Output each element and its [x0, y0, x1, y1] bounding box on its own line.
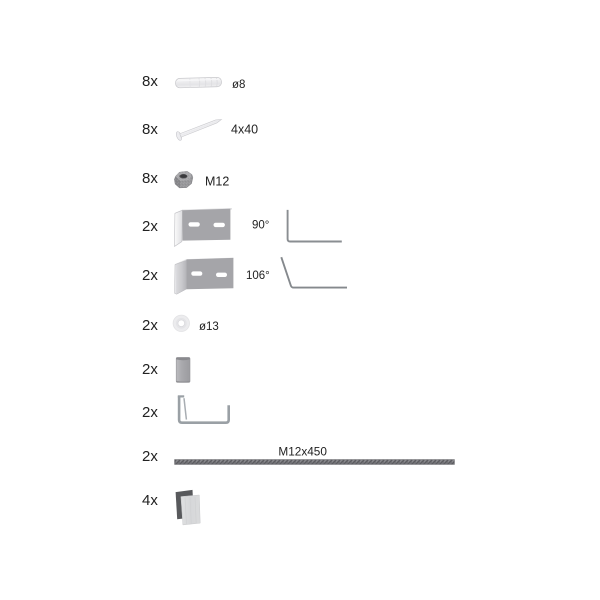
svg-text:2x: 2x	[142, 317, 158, 334]
svg-text:2x: 2x	[142, 404, 158, 421]
svg-text:8x: 8x	[142, 121, 158, 138]
svg-text:8x: 8x	[142, 73, 158, 90]
svg-text:2x: 2x	[142, 361, 158, 378]
svg-text:106°: 106°	[246, 270, 270, 282]
svg-text:ø13: ø13	[199, 321, 219, 333]
svg-text:M12x450: M12x450	[278, 445, 327, 459]
svg-text:2x: 2x	[142, 267, 158, 284]
svg-text:2x: 2x	[142, 448, 158, 465]
svg-text:8x: 8x	[142, 170, 158, 187]
svg-text:4x: 4x	[142, 492, 158, 509]
svg-text:ø8: ø8	[232, 79, 245, 91]
svg-text:90°: 90°	[252, 219, 269, 231]
svg-text:2x: 2x	[142, 218, 158, 235]
svg-text:4x40: 4x40	[231, 123, 258, 137]
svg-text:M12: M12	[205, 174, 229, 188]
